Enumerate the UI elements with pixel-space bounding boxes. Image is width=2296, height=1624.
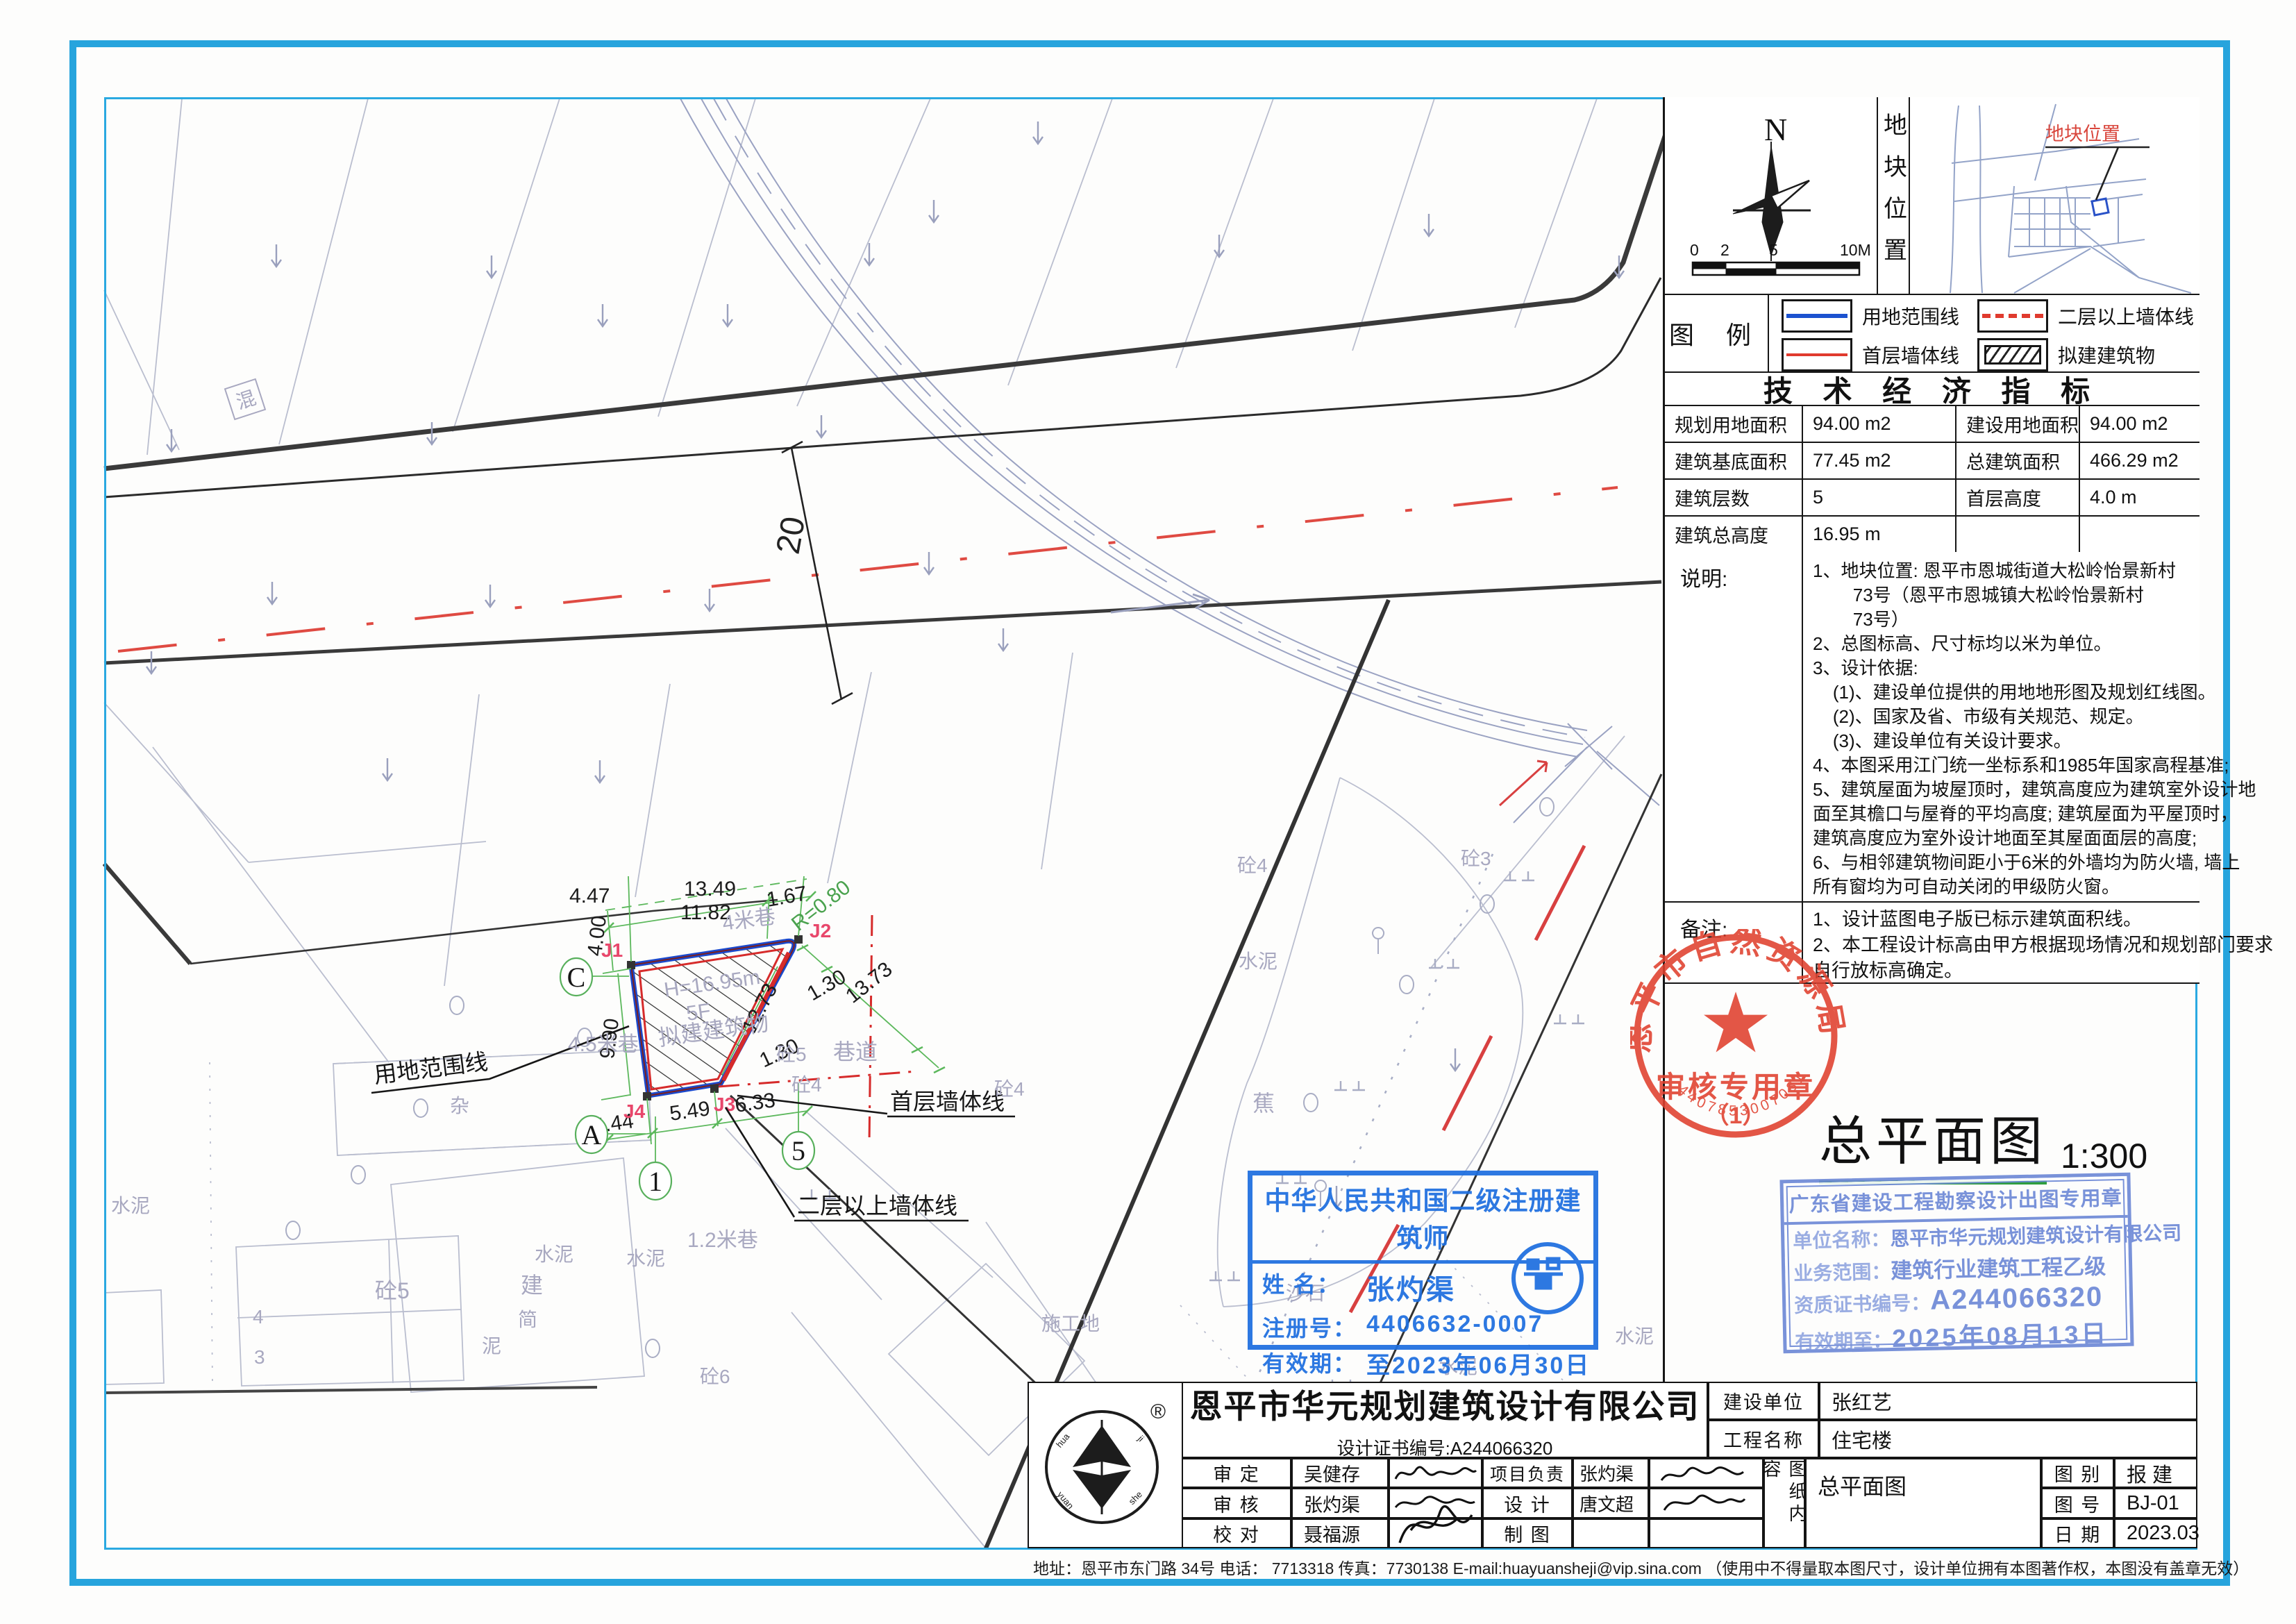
content-value: 总平面图 bbox=[1805, 1458, 2041, 1548]
location-map: 地块位置 bbox=[1910, 97, 2199, 295]
drawing-sheet: 20 bbox=[0, 0, 2296, 1624]
role-label: 设 计 bbox=[1482, 1488, 1573, 1518]
tech-indicators-title: 技 术 经 济 指 标 bbox=[1665, 373, 2199, 406]
legend-title-cell: 图 例 bbox=[1665, 295, 1769, 373]
note-line: 建筑高度应为室外设计地面至其屋面面层的高度; bbox=[1813, 826, 2195, 851]
note-line: 73号） bbox=[1813, 608, 2195, 632]
tech-value: 4.0 m bbox=[2080, 480, 2199, 517]
svg-text:0: 0 bbox=[1690, 241, 1699, 259]
role-name: 聂福源 bbox=[1291, 1518, 1389, 1548]
note-line: 面至其檐口与屋脊的平均高度; 建筑屋面为平屋顶时， bbox=[1813, 802, 2195, 826]
signature-cell bbox=[1389, 1458, 1482, 1488]
tech-label: 首层高度 bbox=[1956, 480, 2080, 517]
map-site-label: 地块位置 bbox=[2045, 124, 2120, 144]
role-label: 项目负责 bbox=[1482, 1458, 1573, 1488]
legend-item-boundary: 用地范围线 bbox=[1782, 299, 1959, 333]
role-name: 唐文超 bbox=[1573, 1488, 1649, 1518]
company-name: 恩平市华元规划建筑设计有限公司 bbox=[1190, 1380, 1700, 1428]
meta-value: BJ-01 bbox=[2114, 1488, 2197, 1518]
signature-scribble bbox=[1650, 1459, 1754, 1487]
gd-cert-no: A244066320 bbox=[1930, 1282, 2104, 1316]
tech-value: 466.29 m2 bbox=[2080, 443, 2199, 480]
tech-value: 5 bbox=[1803, 480, 1956, 517]
architect-reg-no: 4406632-0007 bbox=[1366, 1311, 1543, 1343]
tech-label: 规划用地面积 bbox=[1665, 406, 1803, 443]
note-line: 5、建筑屋面为坡屋顶时，建筑高度应为建筑室外设计地 bbox=[1813, 778, 2195, 802]
drawing-title: 总平面图 1:300 bbox=[1819, 1098, 2147, 1184]
architect-seal-icon bbox=[1511, 1242, 1584, 1314]
notes-label-cell: 说明: bbox=[1665, 552, 1803, 903]
role-name: 张灼渠 bbox=[1573, 1458, 1649, 1488]
signature-cell-empty bbox=[1649, 1518, 1763, 1548]
tech-value: 16.95 m bbox=[1803, 517, 1956, 552]
notes-body: 1、地块位置: 恩平市恩城街道大松岭怡景新村 73号（恩平市恩城镇大松岭怡景新村… bbox=[1803, 552, 2199, 903]
role-label: 审 定 bbox=[1182, 1458, 1291, 1488]
gd-stamp-title: 广东省建设工程勘察设计出图专用章 bbox=[1784, 1176, 2128, 1225]
client-value: 张红艺 bbox=[1819, 1382, 2197, 1420]
drawing-title-text: 总平面图 bbox=[1819, 1098, 2047, 1184]
role-name: 吴健存 bbox=[1291, 1458, 1389, 1488]
north-arrow-section: N 0 2 5 10M bbox=[1665, 97, 1878, 295]
architect-stamp: 中华人民共和国二级注册建筑师 姓 名：张灼渠 注册号：4406632-0007 … bbox=[1248, 1171, 1598, 1350]
signature-scribble bbox=[1650, 1489, 1754, 1517]
meta-label: 图 别 bbox=[2041, 1458, 2114, 1488]
legend-item-upper-wall: 二层以上墙体线 bbox=[1977, 299, 2194, 333]
gd-design-stamp: 广东省建设工程勘察设计出图专用章 单位名称：恩平市华元规划建筑设计有限公司 业务… bbox=[1779, 1173, 2134, 1354]
company-cert-number: 设计证书编号:A244066320 bbox=[1337, 1434, 1553, 1460]
scale-bar: 0 2 5 10M bbox=[1690, 241, 1871, 275]
note-line: 73号（恩平市恩城镇大松岭怡景新村 bbox=[1813, 583, 2195, 608]
legend-sample-first-wall-icon bbox=[1782, 338, 1852, 371]
note-line: 4、本图采用江门统一坐标系和1985年国家高程基准; bbox=[1813, 753, 2195, 778]
note-line: 2、总图标高、尺寸标均以米为单位。 bbox=[1813, 632, 2195, 656]
legend-sample-upper-wall-icon bbox=[1977, 299, 2048, 333]
footer-contact-line: 地址：恩平市东门路 34号 电话： 7713318 传真：7730138 E-m… bbox=[1033, 1555, 2230, 1579]
legend-item-first-wall: 首层墙体线 bbox=[1782, 338, 1959, 371]
role-name: 张灼渠 bbox=[1291, 1488, 1389, 1518]
content-label: 图纸内容 bbox=[1763, 1458, 1805, 1548]
client-label: 建设单位 bbox=[1708, 1382, 1819, 1420]
svg-text:10M: 10M bbox=[1840, 241, 1871, 259]
legend-items: 用地范围线 二层以上墙体线 首层墙体线 拟建建筑物 bbox=[1769, 295, 2199, 373]
role-name bbox=[1573, 1518, 1649, 1548]
note-line: 3、设计依据: bbox=[1813, 656, 2195, 680]
meta-label: 日 期 bbox=[2041, 1518, 2114, 1548]
tech-value: 94.00 m2 bbox=[1803, 406, 1956, 443]
company-logo-cell: ® hua yuan she ji bbox=[1028, 1382, 1183, 1548]
remarks-body: 1、设计蓝图电子版已标示建筑面积线。 2、本工程设计标高由甲方根据现场情况和规划… bbox=[1803, 903, 2199, 984]
svg-text:®: ® bbox=[1150, 1400, 1166, 1423]
tech-value: 77.45 m2 bbox=[1803, 443, 1956, 480]
note-line: (3)、建设单位有关设计要求。 bbox=[1813, 729, 2195, 753]
signature-cell bbox=[1649, 1488, 1763, 1518]
gd-scope: 建筑行业建筑工程乙级 bbox=[1891, 1249, 2106, 1284]
meta-value: 报 建 bbox=[2114, 1458, 2197, 1488]
architect-validity: 至2023年06月30日 bbox=[1366, 1346, 1591, 1380]
tech-value bbox=[2080, 517, 2199, 552]
tech-label: 建筑层数 bbox=[1665, 480, 1803, 517]
signature-scribble bbox=[1390, 1459, 1480, 1487]
tech-label: 建筑基底面积 bbox=[1665, 443, 1803, 480]
north-label: N bbox=[1764, 112, 1787, 147]
legend-item-proposed: 拟建建筑物 bbox=[1977, 338, 2155, 371]
role-label: 审 核 bbox=[1182, 1488, 1291, 1518]
tech-value: 94.00 m2 bbox=[2080, 406, 2199, 443]
legend-sample-boundary-icon bbox=[1782, 299, 1852, 333]
tech-label: 建设用地面积 bbox=[1956, 406, 2080, 443]
remark-line: 自行放标高确定。 bbox=[1813, 958, 2199, 984]
role-label: 校 对 bbox=[1182, 1518, 1291, 1548]
svg-text:5: 5 bbox=[1769, 241, 1778, 259]
tech-indicators-table: 规划用地面积 94.00 m2 建设用地面积 94.00 m2 建筑基底面积 7… bbox=[1665, 406, 2199, 552]
tech-label: 建筑总高度 bbox=[1665, 517, 1803, 552]
location-title-strip: 地块位置 bbox=[1878, 97, 1910, 295]
note-line: 1、地块位置: 恩平市恩城街道大松岭怡景新村 bbox=[1813, 559, 2195, 583]
project-label: 工程名称 bbox=[1708, 1420, 1819, 1458]
tech-label bbox=[1956, 517, 2080, 552]
remarks-label-cell: 备注: bbox=[1665, 903, 1803, 984]
tech-label: 总建筑面积 bbox=[1956, 443, 2080, 480]
signature-cell bbox=[1649, 1458, 1763, 1488]
signature-scribble-large bbox=[1390, 1489, 1480, 1551]
architect-name: 张灼渠 bbox=[1366, 1267, 1456, 1307]
legend-sample-proposed-icon bbox=[1977, 338, 2048, 371]
remark-line: 1、设计蓝图电子版已标示建筑面积线。 bbox=[1813, 907, 2199, 932]
note-line: 所有窗均为可自动关闭的甲级防火窗。 bbox=[1813, 875, 2195, 899]
meta-value: 2023.03 bbox=[2114, 1518, 2197, 1548]
note-line: 6、与相邻建筑物间距小于6米的外墙均为防火墙, 墙上 bbox=[1813, 851, 2195, 875]
note-line: (2)、国家及省、市级有关规范、规定。 bbox=[1813, 705, 2195, 729]
signature-cell bbox=[1389, 1518, 1482, 1548]
huayuan-logo-icon: ® hua yuan she ji bbox=[1039, 1392, 1171, 1538]
company-cell: 恩平市华元规划建筑设计有限公司 设计证书编号:A244066320 bbox=[1182, 1382, 1708, 1458]
gd-valid-date: 2025年08月13日 bbox=[1892, 1314, 2109, 1355]
note-line: (1)、建设单位提供的用地地形图及规划红线图。 bbox=[1813, 680, 2195, 705]
project-value: 住宅楼 bbox=[1819, 1420, 2197, 1458]
remark-line: 2、本工程设计标高由甲方根据现场情况和规划部门要求 bbox=[1813, 932, 2199, 958]
svg-text:2: 2 bbox=[1720, 241, 1729, 259]
meta-label: 图 号 bbox=[2041, 1488, 2114, 1518]
svg-text:ji: ji bbox=[1135, 1433, 1146, 1443]
map-site-mark: 地块位置 bbox=[2045, 124, 2150, 215]
role-label: 制 图 bbox=[1482, 1518, 1573, 1548]
